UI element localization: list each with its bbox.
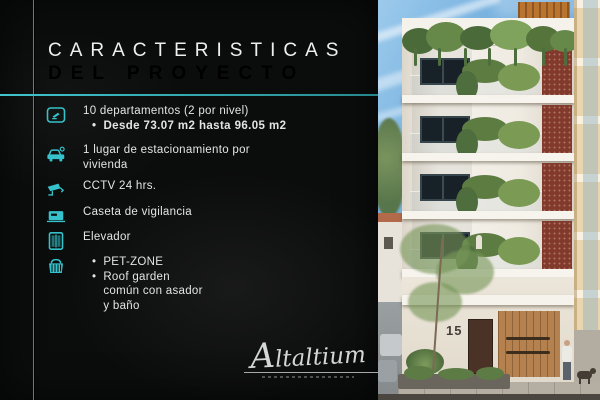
dog <box>577 368 597 384</box>
brick-accent-panel <box>542 163 572 213</box>
feature-bullet: •PET-ZONE <box>92 255 346 270</box>
brand-logo-signature: Altaltium <box>237 330 379 377</box>
roof-pergola <box>518 2 570 19</box>
pet-zone-icon <box>46 256 66 276</box>
feature-text: •PET-ZONE•Roof gardencomún con asadory b… <box>83 255 346 313</box>
shrub <box>438 368 474 380</box>
feature-row: 1 lugar de estacionamiento porvivienda <box>46 143 346 172</box>
garage-handle <box>506 337 550 340</box>
building-floor <box>402 161 574 219</box>
feature-text: Caseta de vigilancia <box>83 205 346 220</box>
info-panel: CARACTERISTICAS DEL PROYECTO 10 departam… <box>0 0 378 400</box>
feature-bullet: •Desde 73.07 m2 hasta 96.05 m2 <box>92 119 346 134</box>
feature-row: CCTV 24 hrs. <box>46 179 346 194</box>
car-icon <box>46 144 66 164</box>
elevator-icon <box>46 231 66 251</box>
floor-slab <box>402 153 574 161</box>
brick-accent-panel <box>542 105 572 155</box>
house-number: 15 <box>446 323 462 338</box>
entrance-door <box>468 319 493 374</box>
floor-plan-icon <box>46 105 66 125</box>
roof-garden-plants <box>402 20 574 90</box>
neighbor-house-left <box>378 213 404 305</box>
building-floor <box>402 103 574 161</box>
shrub <box>476 367 504 380</box>
brand-logo-underline <box>244 372 378 373</box>
street-curb <box>378 394 600 400</box>
feature-row: 10 departamentos (2 por nivel)•Desde 73.… <box>46 104 346 133</box>
brand-logo-tagline-microtext <box>262 376 354 378</box>
building-photo: 15 <box>378 0 600 400</box>
parked-car <box>378 360 397 382</box>
neighbor-house-roof <box>378 213 404 222</box>
hanging-vine <box>438 48 441 66</box>
garage-door <box>498 311 560 377</box>
floor-slab <box>402 95 574 103</box>
hanging-vine <box>514 48 517 66</box>
feature-text: Elevador <box>83 230 346 245</box>
feature-text: CCTV 24 hrs. <box>83 179 346 194</box>
hanging-vine <box>542 48 545 66</box>
feature-row: •PET-ZONE•Roof gardencomún con asadory b… <box>46 255 346 313</box>
feature-row: Elevador <box>46 230 346 245</box>
balcony-plant <box>498 179 540 207</box>
feature-bullet: •Roof gardencomún con asadory baño <box>92 270 346 314</box>
hanging-vine <box>464 48 467 66</box>
pedestrian <box>561 340 573 384</box>
neighbor-house-window <box>384 237 393 249</box>
parked-car <box>380 334 402 356</box>
feature-text: 1 lugar de estacionamiento porvivienda <box>83 143 346 172</box>
balcony-person <box>476 235 482 249</box>
project-flyer: CARACTERISTICAS DEL PROYECTO 10 departam… <box>0 0 600 400</box>
floor-slab <box>402 211 574 219</box>
brick-accent-panel <box>542 221 572 271</box>
hanging-vine <box>564 48 567 66</box>
balcony-plant <box>498 121 540 149</box>
feature-row: Caseta de vigilancia <box>46 205 346 220</box>
hanging-vine <box>414 48 417 66</box>
cctv-icon <box>46 180 66 200</box>
guard-booth-icon <box>46 206 66 226</box>
balcony-plant <box>498 237 540 265</box>
hanging-vine <box>488 48 491 66</box>
shrub <box>404 366 434 380</box>
accent-rule <box>0 94 378 96</box>
garage-handle <box>506 351 550 354</box>
vertical-divider-line <box>33 0 34 400</box>
feature-text: 10 departamentos (2 por nivel)•Desde 73.… <box>83 104 346 133</box>
page-subtitle: DEL PROYECTO <box>48 63 305 85</box>
page-title: CARACTERISTICAS <box>48 40 346 62</box>
